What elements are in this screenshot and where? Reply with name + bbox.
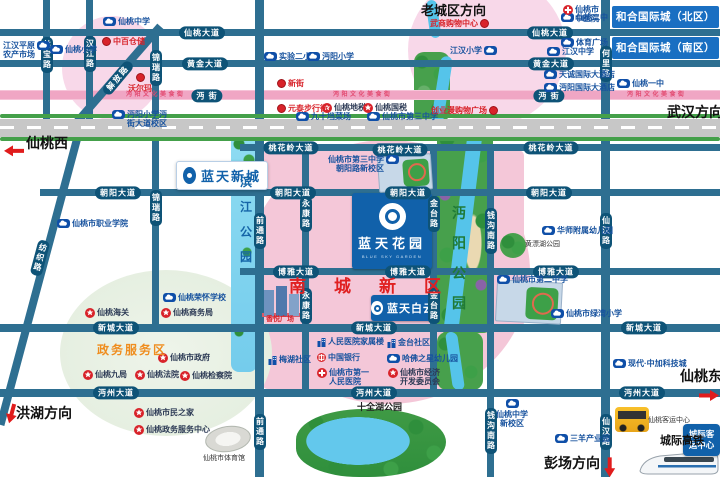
label-text: 金 台 路 <box>430 199 438 228</box>
arrow-icon <box>699 390 719 401</box>
label-text: 中国银行 <box>328 353 360 362</box>
label-text: 仙桃市政府 <box>170 353 210 362</box>
building-icon <box>268 355 277 365</box>
label-text: 现代·中加科技城 <box>628 359 687 368</box>
direction-arrow <box>4 140 24 158</box>
label-text: 九十垱菜场 <box>311 112 351 121</box>
place-pin: 沔阳小学沔 街大道校区 <box>112 110 167 128</box>
place-label: 黄漂湖公园 <box>525 241 560 249</box>
label-text: 新城大道 <box>356 323 392 332</box>
huangpiaohu-park <box>500 233 526 258</box>
place-pin: 江汉平原 农产市场 <box>3 41 50 59</box>
lantian-logo-icon <box>371 301 383 315</box>
gov-place-pin: 仙桃政务服务中心 <box>134 425 210 435</box>
label-text: 锦 瑞 路 <box>152 53 160 82</box>
label-text: 仙桃法院 <box>147 370 179 379</box>
label-text: 桃花岭大道 <box>529 143 574 152</box>
label-text: 沔州大道 <box>98 388 134 397</box>
label-text: 新城大道 <box>626 323 662 332</box>
direction-arrow <box>699 388 719 406</box>
project-box-lantian-huayuan: 蓝天花园 BLUE SKY GARDEN <box>352 193 432 269</box>
arrow-icon <box>4 403 20 425</box>
label-text: 仙桃市 中医院 <box>575 5 599 23</box>
label-text: 创业漫购物广场 <box>431 106 487 115</box>
label-text: 锦 瑞 路 <box>152 193 160 222</box>
road-name-label: 桃花岭大道 <box>264 141 319 154</box>
road-name-label: 前 通 路 <box>254 414 266 450</box>
star-icon <box>161 308 171 318</box>
shop-pin: 新街 <box>277 79 304 88</box>
direction-label: 老城区方向 <box>421 4 486 19</box>
label-text: 朝阳大道 <box>100 188 136 197</box>
place-pin: 仙桃一中 <box>617 79 664 88</box>
gov-place-pin: 仙桃国税 <box>363 103 407 113</box>
direction-arrow <box>599 457 617 477</box>
dot-icon <box>277 79 286 88</box>
road-name-label: 沔州大道 <box>351 386 397 399</box>
road-name-label: 新城大道 <box>93 321 139 334</box>
place-label: 仙桃客运中心 <box>648 417 690 425</box>
highway-green-edge <box>0 114 720 118</box>
dot-icon <box>480 19 489 28</box>
label-text: 仙桃地税 <box>334 103 366 112</box>
cloud-icon <box>264 52 277 61</box>
road-name-label: 新城大道 <box>621 321 667 334</box>
label-text: 仙桃东 <box>680 370 720 385</box>
label-text: 天诚国际大酒店 <box>559 70 615 79</box>
label-text: 沔阳小学沔 街大道校区 <box>127 110 167 128</box>
label-text: 华师附属幼儿园 <box>557 226 613 235</box>
label-text: 仙桃市体育馆 <box>203 455 245 462</box>
cross-icon <box>317 368 327 378</box>
label-text: 朝阳大道 <box>531 188 567 197</box>
cloud-icon <box>506 399 519 408</box>
label-text: 仙桃商务局 <box>173 308 213 317</box>
label-text: 政务服务区 <box>97 343 167 357</box>
star-icon <box>134 408 144 418</box>
road-xiantao-avenue <box>0 29 720 36</box>
label-text: 博雅大道 <box>278 267 314 276</box>
label-text: 仙桃市第一 人民医院 <box>329 368 369 386</box>
label-text: 城际高铁 <box>660 435 704 447</box>
shiquanhu-lake-park <box>296 409 446 477</box>
label-text: 金台社区 <box>398 338 430 347</box>
cloud-icon <box>542 226 555 235</box>
label-text: 仙桃一中 <box>632 79 664 88</box>
place-pin: 华师附属幼儿园 <box>542 226 613 235</box>
label-text: 仙桃政务服务中心 <box>146 425 210 434</box>
place-pin: 仙桃中学 新校区 <box>496 399 528 428</box>
label-text: 仙桃国税 <box>375 103 407 112</box>
cloud-icon <box>497 275 510 284</box>
label-text: 体育广场 <box>576 38 608 47</box>
hospital-pin: 仙桃市 中医院 <box>563 5 599 23</box>
gov-place-pin: 仙桃检察院 <box>180 371 232 381</box>
cloud-icon <box>367 112 380 121</box>
food-street-label: 沔阳文化美食街 <box>627 92 687 99</box>
star-icon <box>363 103 373 113</box>
label-text: 前 通 路 <box>256 417 264 446</box>
park-name: 滨 江 公 园 <box>240 170 252 270</box>
road-huangjin-avenue <box>0 60 720 67</box>
label-text: 武汉方向 <box>667 106 720 121</box>
label-text: 沔阳文化美食街 <box>333 92 393 98</box>
label-text: 和合国际城（南区） <box>616 42 715 54</box>
label-text: 江汉平原 农产市场 <box>3 41 35 59</box>
road-name-label: 黄金大道 <box>182 57 228 70</box>
direction-label: 彭场方向 <box>544 457 600 473</box>
road-name-label: 沔 街 <box>191 89 222 102</box>
road-name-label: 金 台 路 <box>428 196 440 232</box>
gov-place-pin: 仙桃地税 <box>322 103 366 113</box>
label-text: 黄金大道 <box>187 59 223 68</box>
road-name-label: 朝阳大道 <box>385 186 431 199</box>
building-icon <box>317 337 326 347</box>
label-text: 老城区方向 <box>421 3 486 18</box>
label-text: 黄漂湖公园 <box>525 241 560 248</box>
label-text: 黄金大道 <box>533 59 569 68</box>
cloud-icon <box>613 359 626 368</box>
hospital-pin: 仙桃市第一 人民医院 <box>317 368 369 386</box>
label-text: 彭场方向 <box>544 457 600 472</box>
lantian-logo-icon <box>379 203 406 230</box>
label-text: 仙桃市绿湾小学 <box>566 309 622 318</box>
road-name-label: 桃花岭大道 <box>524 141 579 154</box>
gov-place-pin: 仙桃市民之家 <box>134 408 194 418</box>
label-text: 仙桃市第三中学 朝阳路新校区 <box>328 155 384 173</box>
project-banner: 和合国际城（北区） <box>612 6 719 28</box>
shop-pin: 中百仓储 <box>102 37 145 46</box>
road-name-label: 永 康 路 <box>300 196 312 232</box>
gov-place-pin: 仙桃市经济 开发委员会 <box>388 368 440 386</box>
label-text: 前 通 路 <box>256 216 264 245</box>
label-text: 博雅大道 <box>390 267 426 276</box>
label-text: 哈佛之星幼儿园 <box>402 354 458 363</box>
label-text: 元泰步行街 <box>288 104 328 113</box>
road-name-label: 锦 瑞 路 <box>150 190 162 226</box>
cloud-icon <box>551 309 564 318</box>
label-text: 仙桃市经济 开发委员会 <box>400 368 440 386</box>
label-text: 中百仓储 <box>113 37 145 46</box>
star-icon <box>135 370 145 380</box>
building-icon <box>387 338 396 348</box>
arrow-icon <box>4 145 24 156</box>
label-text: 仙桃西 <box>26 137 68 152</box>
place-pin: 江汉中学 <box>547 47 594 56</box>
label-text: 沔阳国际大酒店 <box>559 83 615 92</box>
road-name-label: 沔州大道 <box>93 386 139 399</box>
cloud-icon <box>387 354 400 363</box>
dot-icon <box>136 73 145 82</box>
label-text: 仙桃大道 <box>184 28 220 37</box>
bank-icon <box>317 353 326 362</box>
place-pin: 沔阳小学 <box>307 52 354 61</box>
gov-place-pin: 仙桃法院 <box>135 370 179 380</box>
label-text: 江汉中学 <box>562 47 594 56</box>
place-label: 香悦广场 <box>266 316 294 324</box>
label-text: 仙桃市民之家 <box>146 408 194 417</box>
label-text: 洪湖方向 <box>16 407 72 422</box>
place-pin: 仙桃中学 <box>103 17 150 26</box>
label-text: 沔 街 <box>538 91 559 100</box>
cloud-icon <box>561 38 574 47</box>
community-pin: 梅湖社区 <box>268 355 311 365</box>
food-street-label: 沔阳文化美食街 <box>333 92 393 99</box>
cloud-icon <box>484 46 497 55</box>
road-name-label: 仙 汉 路 <box>600 414 612 450</box>
bank-pin: 中国银行 <box>317 353 360 362</box>
cloud-icon <box>555 434 568 443</box>
place-pin: 实验二小 <box>264 52 311 61</box>
road-name-label: 黄金大道 <box>528 57 574 70</box>
label-text: 十全湖公园 <box>357 402 402 412</box>
place-pin: 仙桃市职业学院 <box>57 219 128 228</box>
place-pin: 天诚国际大酒店 <box>544 70 615 79</box>
cloud-icon <box>544 70 557 79</box>
project-box-lantian-xincheng: 蓝天新城 <box>176 161 268 190</box>
place-pin: 三羊产业园 <box>555 434 610 443</box>
star-icon <box>388 368 398 378</box>
label-text: 沔阳小学 <box>322 52 354 61</box>
label-text: 钱 沟 南 路 <box>487 211 495 250</box>
star-icon <box>83 370 93 380</box>
cloud-icon <box>617 79 630 88</box>
cloud-icon <box>296 112 309 121</box>
project-banner: 和合国际城（南区） <box>612 37 719 59</box>
star-icon <box>85 308 95 318</box>
gov-place-pin: 仙桃商务局 <box>161 308 213 318</box>
label-text: 和合国际城（北区） <box>616 11 715 23</box>
shop-label: 武商购物中心 <box>430 19 489 28</box>
label-text: 武商购物中心 <box>430 19 478 28</box>
place-pin: 仙桃荣怀学校 <box>163 293 226 302</box>
label-text: 仙桃小学 <box>65 45 97 54</box>
cloud-icon <box>163 293 176 302</box>
label-text: 仙桃中学 <box>118 17 150 26</box>
direction-label: 洪湖方向 <box>16 407 72 423</box>
label-text: 沔州大道 <box>356 388 392 397</box>
highway-green-edge <box>0 137 720 141</box>
project-name-en: BLUE SKY GARDEN <box>362 254 422 259</box>
place-label: 十全湖公园 <box>357 402 402 412</box>
label-text: 仙桃九局 <box>95 370 127 379</box>
place-pin: 江汉小学 <box>450 46 497 55</box>
label-text: 仙桃大道 <box>532 28 568 37</box>
label-text: 仙桃检察院 <box>192 371 232 380</box>
place-pin: 仙桃小学 <box>50 45 97 54</box>
road-name-label: 朝阳大道 <box>526 186 572 199</box>
label-text: 滨 江 公 园 <box>240 175 252 264</box>
highway <box>0 119 720 137</box>
label-text: 仙桃荣怀学校 <box>178 293 226 302</box>
label-text: 沔阳文化美食街 <box>627 92 687 98</box>
place-pin: 体育广场 <box>561 38 608 47</box>
community-pin: 人民医院家属楼 <box>317 337 384 347</box>
cross-icon <box>563 5 573 15</box>
shop-label: 创业漫购物广场 <box>431 106 498 115</box>
cloud-icon <box>50 45 63 54</box>
cloud-icon <box>547 47 560 56</box>
place-pin: 仙桃市第二中学 <box>497 275 568 284</box>
zone-name: 政务服务区 <box>97 344 167 358</box>
label-text: 桃花岭大道 <box>269 143 314 152</box>
label-text: 仙桃客运中心 <box>648 417 690 424</box>
gov-place-pin: 仙桃九局 <box>83 370 127 380</box>
dot-icon <box>277 104 286 113</box>
cloud-icon <box>37 41 50 50</box>
place-pin: 沔阳国际大酒店 <box>544 83 615 92</box>
cloud-icon <box>103 17 116 26</box>
park-name: 沔 阳 公 园 <box>452 198 466 318</box>
label-text: 朝阳大道 <box>390 188 426 197</box>
direction-label: 武汉方向 <box>667 106 720 122</box>
food-street-label: 沔阳文化美食街 <box>126 92 186 99</box>
label-text: 仙桃市职业学院 <box>72 219 128 228</box>
label-text: 香悦广场 <box>266 316 294 323</box>
cloud-icon <box>386 155 399 164</box>
highway-dash-line <box>0 126 720 129</box>
label-text: 江汉小学 <box>450 46 482 55</box>
dot-icon <box>102 37 111 46</box>
map: 蓝天新城 蓝天花园 BLUE SKY GARDEN 蓝天白云 城际客运中心 仙桃… <box>0 0 720 477</box>
place-pin: 哈佛之星幼儿园 <box>387 354 458 363</box>
star-icon <box>134 425 144 435</box>
road-name-label: 仙桃大道 <box>179 26 225 39</box>
label-text: 仙桃市第三中学 <box>382 112 438 121</box>
label-text: 钱 沟 南 路 <box>487 411 495 450</box>
label-text: 南城新区 <box>289 277 469 296</box>
label-text: 三羊产业园 <box>570 434 610 443</box>
label-text: 梅湖社区 <box>279 355 311 364</box>
label-text: 人民医院家属楼 <box>328 337 384 346</box>
label-text: 沔 街 <box>196 91 217 100</box>
shop-pin: 沃尔玛 <box>128 73 152 93</box>
place-pin: 仙桃市绿湾小学 <box>551 309 622 318</box>
place-pin: 九十垱菜场 <box>296 112 351 121</box>
arrow-icon <box>604 457 615 477</box>
direction-label: 仙桃西 <box>26 137 68 153</box>
road-name-label: 前 通 路 <box>254 213 266 249</box>
road-name-label: 朝阳大道 <box>95 186 141 199</box>
label-text: 新街 <box>288 79 304 88</box>
place-pin: 仙桃市第三中学 朝阳路新校区 <box>328 155 399 173</box>
label-text: 仙桃中学 新校区 <box>496 410 528 428</box>
bus-image <box>615 407 649 432</box>
cloud-icon <box>57 219 70 228</box>
place-label: 仙桃市体育馆 <box>203 455 245 463</box>
label-text: 仙桃市第二中学 <box>512 275 568 284</box>
project-name: 蓝天花园 <box>358 233 426 252</box>
shop-pin: 元泰步行街 <box>277 104 328 113</box>
cloud-icon <box>544 83 557 92</box>
district-name: 南城新区 <box>289 277 469 297</box>
label-text: 永 康 路 <box>302 199 310 228</box>
community-pin: 金台社区 <box>387 338 430 348</box>
label-text: 桃花岭大道 <box>378 145 423 154</box>
road-name-label: 新城大道 <box>351 321 397 334</box>
direction-label: 仙桃东 <box>680 370 720 386</box>
label-text: 沔阳文化美食街 <box>126 92 186 98</box>
place-pin: 现代·中加科技城 <box>613 359 687 368</box>
cloud-icon <box>307 52 320 61</box>
project-box-lantian-baiyun: 蓝天白云 <box>371 295 435 321</box>
star-icon <box>180 371 190 381</box>
place-label: 城际高铁 <box>660 435 704 448</box>
road-name-label: 钱 沟 南 路 <box>485 208 497 254</box>
road-name-label: 沔州大道 <box>619 386 665 399</box>
gov-place-pin: 仙桃海关 <box>85 308 129 318</box>
label-text: 沔州大道 <box>624 388 660 397</box>
label-text: 新城大道 <box>98 323 134 332</box>
place-pin: 仙桃市第三中学 <box>367 112 438 121</box>
label-text: 仙桃海关 <box>97 308 129 317</box>
dot-icon <box>489 106 498 115</box>
lantian-logo-icon <box>183 167 196 184</box>
cloud-icon <box>112 110 125 119</box>
